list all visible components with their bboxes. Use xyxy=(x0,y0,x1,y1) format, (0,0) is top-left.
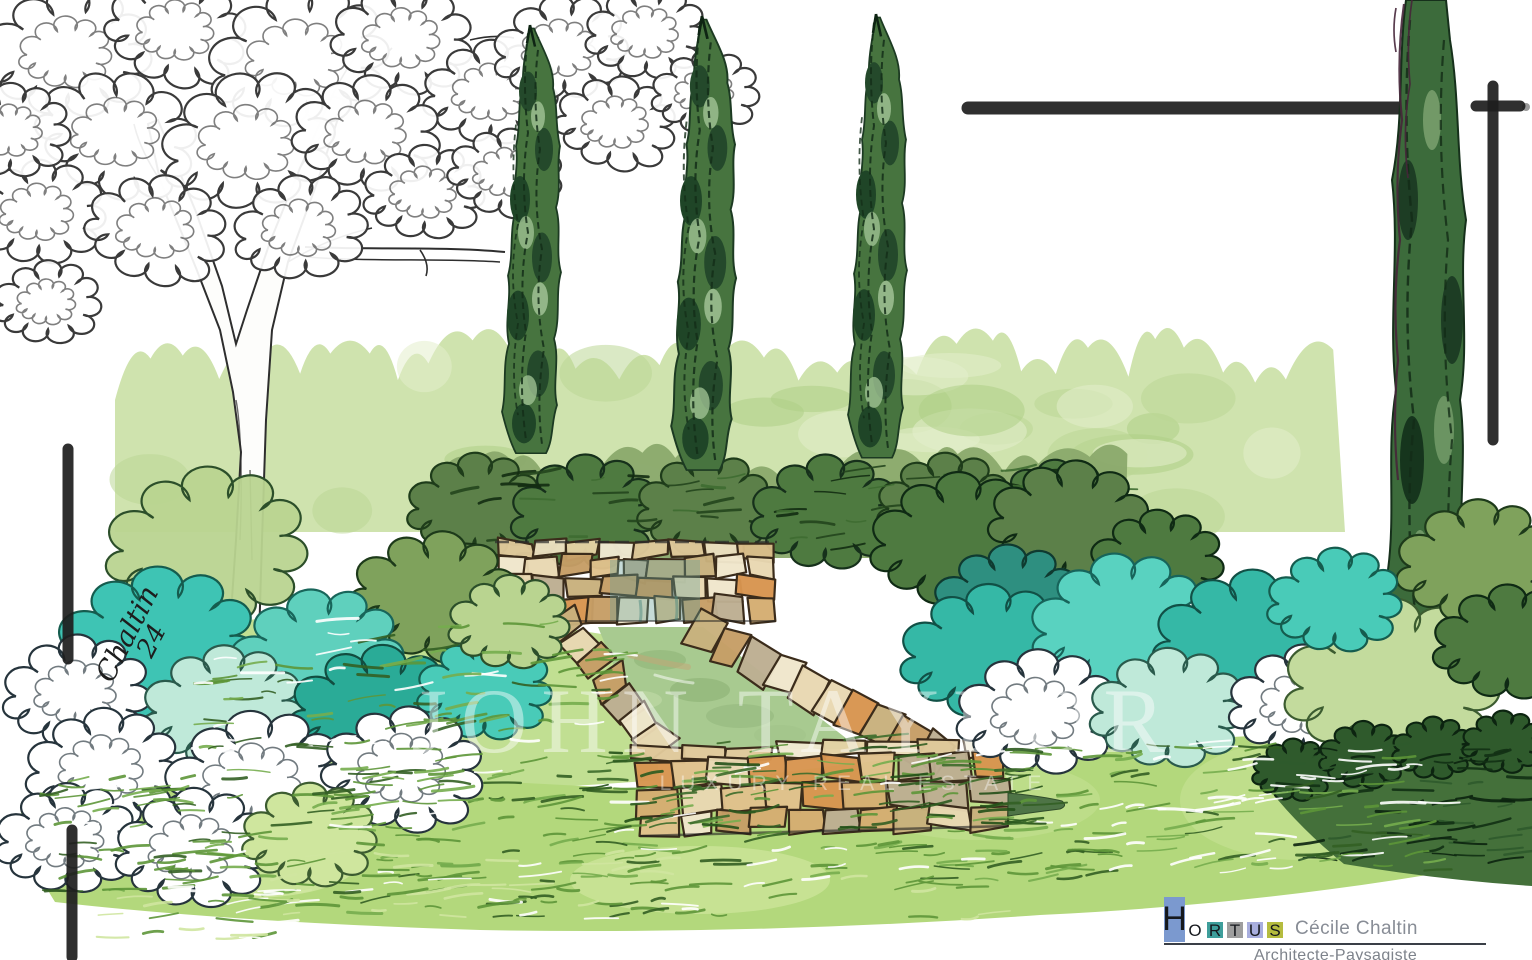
garden-sketch: JOHN TAYLOR LUXURY REAL ESTATE Chaltin 2… xyxy=(0,0,1532,960)
logo-brand-row: HORTUS Cécile Chaltin xyxy=(1164,897,1486,945)
logo-architect-name: Cécile Chaltin xyxy=(1295,918,1418,940)
logo-letter-R: R xyxy=(1207,922,1223,938)
logo-letter-S: S xyxy=(1267,922,1283,938)
hortus-logo: HORTUS Cécile Chaltin Architecte-Paysagi… xyxy=(1164,897,1504,960)
logo-letter-U: U xyxy=(1247,922,1263,938)
logo-architect-title: Architecte-Paysagiste xyxy=(1254,947,1504,960)
garden-rendering-canvas: JOHN TAYLOR LUXURY REAL ESTATE Chaltin 2… xyxy=(0,0,1532,960)
logo-letter-H: H xyxy=(1164,897,1185,942)
logo-letter-T: T xyxy=(1227,922,1243,938)
logo-letter-O: O xyxy=(1187,922,1203,938)
watermark-subtitle: LUXURY REAL ESTATE xyxy=(660,772,1051,795)
logo-brand-letters: HORTUS xyxy=(1164,897,1285,942)
fountain-stain xyxy=(610,560,700,621)
watermark-title: JOHN TAYLOR xyxy=(411,670,1179,772)
